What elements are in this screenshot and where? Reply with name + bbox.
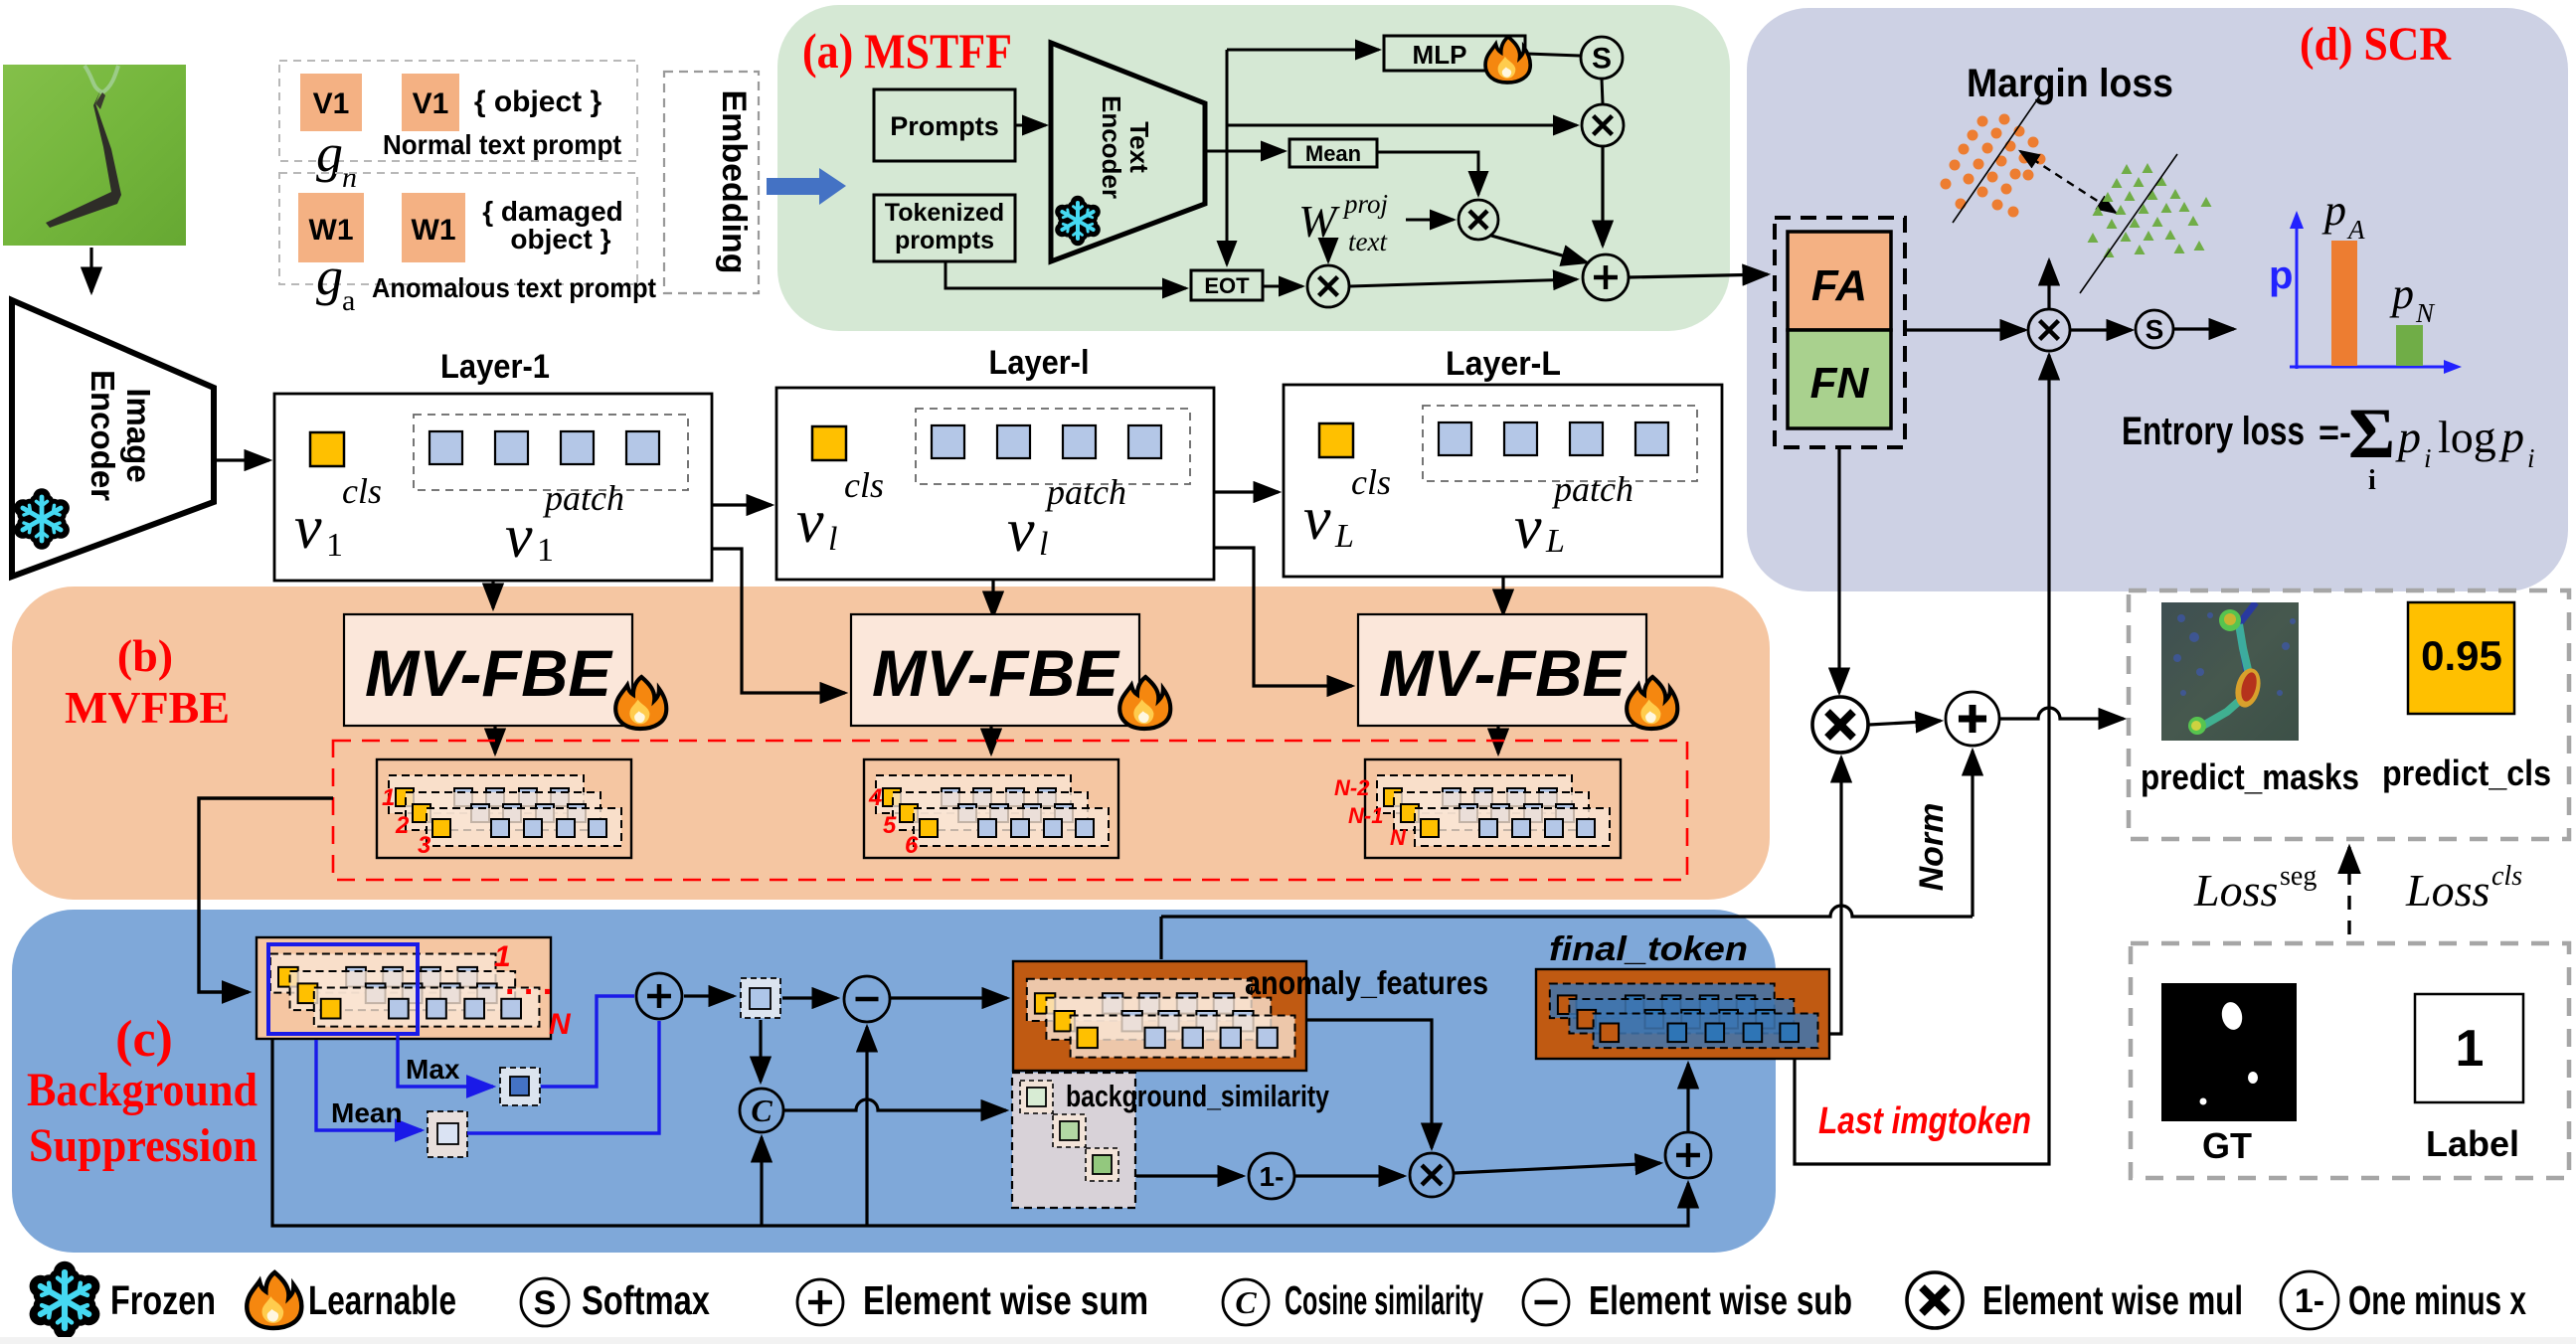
svg-text:Loss: Loss bbox=[2193, 865, 2278, 916]
svg-text:final_token: final_token bbox=[1549, 930, 1748, 968]
svg-text:Margin loss: Margin loss bbox=[1967, 62, 2173, 105]
svg-text:0.95: 0.95 bbox=[2421, 632, 2502, 679]
svg-text:v: v bbox=[294, 494, 322, 562]
svg-text:object }: object } bbox=[510, 224, 610, 254]
svg-text:5: 5 bbox=[883, 812, 897, 839]
svg-text:l: l bbox=[1039, 526, 1048, 563]
svg-text:Layer-1: Layer-1 bbox=[440, 348, 550, 386]
svg-text:. . .: . . . bbox=[505, 964, 552, 1002]
svg-text:MV-FBE: MV-FBE bbox=[872, 636, 1120, 710]
svg-text:cls: cls bbox=[1351, 462, 1391, 502]
svg-text:Element wise sub: Element wise sub bbox=[1589, 1277, 1852, 1323]
svg-text:Layer-l: Layer-l bbox=[989, 344, 1090, 382]
svg-text:(c): (c) bbox=[115, 1011, 173, 1068]
svg-text:p: p bbox=[2395, 412, 2421, 462]
svg-text:Last imgtoken: Last imgtoken bbox=[1818, 1100, 2031, 1142]
svg-text:p: p bbox=[2269, 253, 2293, 297]
svg-text:i: i bbox=[2527, 443, 2535, 473]
svg-text:(a) MSTFF: (a) MSTFF bbox=[802, 23, 1012, 79]
svg-text:S: S bbox=[534, 1284, 557, 1322]
svg-text:patch: patch bbox=[542, 478, 624, 518]
svg-text:i: i bbox=[2368, 465, 2376, 496]
svg-text:(d) SCR: (d) SCR bbox=[2300, 18, 2452, 71]
svg-text:p: p bbox=[2389, 269, 2414, 318]
svg-text:Mean: Mean bbox=[1305, 141, 1361, 166]
svg-text:GT: GT bbox=[2202, 1125, 2252, 1166]
svg-text:v: v bbox=[796, 488, 824, 556]
svg-text:N: N bbox=[2415, 298, 2436, 328]
svg-text:MV-FBE: MV-FBE bbox=[365, 636, 613, 710]
svg-text:3: 3 bbox=[418, 832, 431, 859]
svg-text:W1: W1 bbox=[412, 214, 456, 247]
svg-text:Element wise sum: Element wise sum bbox=[863, 1277, 1148, 1323]
svg-text:Max: Max bbox=[406, 1054, 460, 1085]
svg-text:n: n bbox=[342, 161, 357, 194]
svg-text:2: 2 bbox=[395, 812, 410, 839]
svg-text:C: C bbox=[1235, 1284, 1257, 1320]
svg-text:V1: V1 bbox=[413, 87, 449, 120]
svg-text:One minus x: One minus x bbox=[2348, 1277, 2526, 1323]
svg-text:Entrory loss: Entrory loss bbox=[2122, 410, 2305, 453]
svg-text:Suppression: Suppression bbox=[29, 1119, 258, 1172]
svg-text:N: N bbox=[1390, 825, 1407, 850]
svg-text:V1: V1 bbox=[313, 87, 350, 120]
svg-text:patch: patch bbox=[1551, 469, 1633, 509]
svg-text:W1: W1 bbox=[309, 214, 354, 247]
svg-text:p: p bbox=[2321, 186, 2346, 235]
svg-text:1: 1 bbox=[537, 532, 554, 569]
svg-text:EOT: EOT bbox=[1204, 273, 1250, 298]
svg-text:seg: seg bbox=[2280, 861, 2317, 892]
svg-text:L: L bbox=[1334, 518, 1354, 555]
svg-text:predict_masks: predict_masks bbox=[2141, 756, 2359, 797]
svg-text:Prompts: Prompts bbox=[890, 111, 999, 141]
svg-text:C: C bbox=[751, 1092, 773, 1128]
svg-text:predict_cls: predict_cls bbox=[2382, 753, 2551, 793]
svg-text:=-: =- bbox=[2318, 412, 2351, 452]
svg-text:Embedding: Embedding bbox=[715, 89, 753, 273]
svg-text:ImageEncoder: ImageEncoder bbox=[85, 370, 157, 501]
svg-text:1-: 1- bbox=[2295, 1282, 2324, 1320]
svg-text:L: L bbox=[1545, 523, 1565, 560]
svg-text:FA: FA bbox=[1811, 261, 1867, 310]
svg-text:{ damaged: { damaged bbox=[482, 196, 623, 227]
svg-text:1-: 1- bbox=[1260, 1161, 1285, 1192]
svg-text:v: v bbox=[1514, 494, 1542, 562]
svg-text:Learnable: Learnable bbox=[308, 1277, 456, 1323]
svg-text:FN: FN bbox=[1810, 359, 1870, 408]
svg-text:S: S bbox=[1592, 43, 1612, 76]
svg-text:cls: cls bbox=[2491, 861, 2522, 892]
svg-text:Mean: Mean bbox=[331, 1097, 403, 1128]
svg-text:v: v bbox=[505, 503, 533, 571]
svg-text:g: g bbox=[316, 247, 343, 306]
svg-text:Frozen: Frozen bbox=[110, 1277, 216, 1323]
svg-text:v: v bbox=[1303, 485, 1331, 553]
svg-text:1: 1 bbox=[2456, 1020, 2485, 1078]
svg-text:cls: cls bbox=[844, 465, 884, 505]
svg-text:Layer-L: Layer-L bbox=[1446, 345, 1561, 383]
svg-text:Label: Label bbox=[2426, 1123, 2519, 1164]
svg-text:N: N bbox=[549, 1008, 572, 1041]
svg-text:v: v bbox=[1007, 497, 1035, 565]
svg-text:Softmax: Softmax bbox=[582, 1277, 710, 1323]
svg-text:proj: proj bbox=[1342, 189, 1388, 219]
svg-text:i: i bbox=[2424, 443, 2432, 473]
svg-text:N-2: N-2 bbox=[1334, 775, 1370, 800]
svg-text:Anomalous text prompt: Anomalous text prompt bbox=[372, 272, 656, 303]
svg-text:Norm: Norm bbox=[1913, 803, 1951, 892]
svg-text:anomaly_features: anomaly_features bbox=[1245, 964, 1488, 1001]
svg-text:patch: patch bbox=[1044, 472, 1126, 512]
svg-text:{ object }: { object } bbox=[474, 85, 602, 118]
svg-text:MVFBE: MVFBE bbox=[65, 682, 230, 733]
svg-text:4: 4 bbox=[868, 784, 882, 811]
svg-text:log: log bbox=[2438, 412, 2496, 462]
svg-text:MLP: MLP bbox=[1413, 40, 1467, 70]
svg-text:Loss: Loss bbox=[2405, 865, 2490, 916]
svg-text:text: text bbox=[1348, 227, 1388, 256]
svg-text:S: S bbox=[2146, 314, 2164, 345]
svg-text:6: 6 bbox=[905, 832, 919, 859]
svg-text:background_similarity: background_similarity bbox=[1066, 1079, 1330, 1113]
svg-text:Cosine similarity: Cosine similarity bbox=[1285, 1277, 1483, 1323]
svg-text:p: p bbox=[2498, 412, 2524, 462]
svg-text:A: A bbox=[2346, 215, 2365, 245]
svg-text:Normal text prompt: Normal text prompt bbox=[383, 129, 621, 160]
svg-text:prompts: prompts bbox=[895, 227, 994, 254]
svg-text:Tokenized: Tokenized bbox=[885, 199, 1004, 227]
svg-text:1: 1 bbox=[382, 784, 395, 811]
svg-text:l: l bbox=[828, 521, 837, 558]
svg-text:N-1: N-1 bbox=[1348, 803, 1383, 828]
svg-text:Σ: Σ bbox=[2348, 394, 2395, 473]
svg-text:1: 1 bbox=[326, 527, 343, 564]
svg-text:W: W bbox=[1298, 196, 1340, 247]
svg-text:a: a bbox=[342, 284, 355, 317]
svg-text:Background: Background bbox=[27, 1064, 258, 1116]
svg-text:cls: cls bbox=[342, 471, 382, 511]
svg-text:(b): (b) bbox=[117, 630, 173, 681]
svg-text:Element wise mul: Element wise mul bbox=[1982, 1277, 2243, 1323]
svg-text:MV-FBE: MV-FBE bbox=[1379, 636, 1628, 710]
